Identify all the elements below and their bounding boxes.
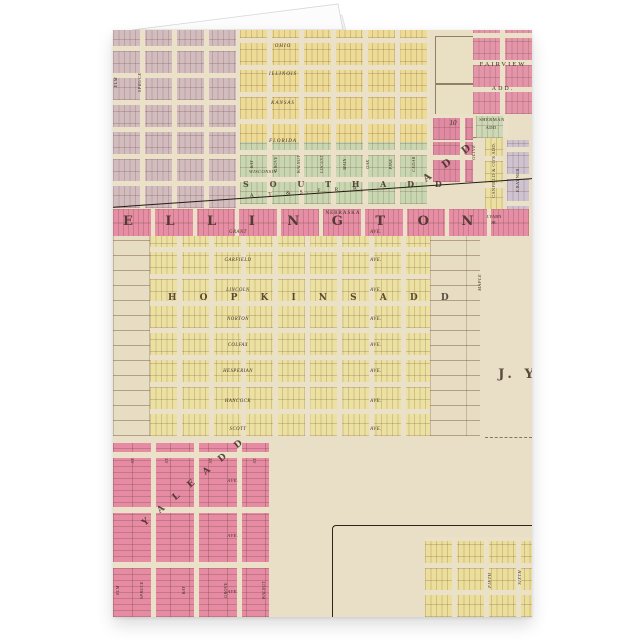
greeting-card-front-map[interactable]: OHIOILLINOISKANSASFLORIDAWISCONSINNEBRAS… <box>113 30 532 617</box>
green-street-1: GROVE <box>274 149 278 179</box>
street-label-wisconsin: WISCONSIN <box>223 170 303 175</box>
canfield-add-label: CANFIELD & CO'S ADD. <box>492 129 497 211</box>
avenue-suffix-7: AVE. <box>361 428 391 433</box>
district-fairview-pink <box>473 30 532 114</box>
green-street-6: PINE <box>389 149 393 179</box>
street-label-spruce: SPRUCE <box>138 67 143 97</box>
street-label-ohio: OHIO <box>243 44 323 49</box>
bottom-street-2: BAY <box>182 575 186 605</box>
yarn-label2: JR. <box>481 221 507 226</box>
owner-big-letters: J. Y <box>498 368 532 381</box>
fairview-add-label2: ADD. <box>483 86 523 92</box>
pink-st-label-0: ST. <box>131 450 135 470</box>
outlots-left <box>113 236 150 436</box>
section-dash-line <box>485 437 532 438</box>
street-label-olive: OLIVE <box>472 137 477 167</box>
north-add-big-letters: S O U T H A D D <box>243 180 423 188</box>
street-label-illinois: ILLINOIS <box>243 72 323 77</box>
green-street-2: WALNUT <box>297 149 301 179</box>
pink-ave-label: AVE. <box>218 534 248 539</box>
district-northwest-mauve <box>113 30 240 208</box>
rayner-label: F.RAYNER <box>516 149 521 211</box>
street-label-elm: ELM <box>114 67 119 97</box>
avenue-label-2: LINCOLN <box>208 289 268 294</box>
avenue-label-4: COLFAX <box>208 344 268 349</box>
town-big-letters: E L L I N G T O N <box>123 215 453 228</box>
pink-st-label-3: ST. <box>253 450 257 470</box>
bottom-street-3: GROVE <box>224 575 228 605</box>
mid-add-big-letters: H O P K I N S A D D <box>168 294 418 303</box>
pink-block-10 <box>433 114 473 140</box>
street-label-maple: MAPLE <box>478 267 483 297</box>
avenue-label-3: NORTON <box>208 318 268 323</box>
inset-street-sixth: SIXTH <box>518 562 523 592</box>
avenue-suffix-5: AVE. <box>361 370 391 375</box>
green-street-3: LOCUST <box>320 149 324 179</box>
green-street-0: BAY <box>250 149 254 179</box>
avenue-label-7: SCOTT <box>208 428 268 433</box>
sherman-add-label: SHERMAN <box>476 118 508 123</box>
inset-street-fifth: FIFTH <box>488 565 493 595</box>
bottom-street-0: ELM <box>116 575 120 605</box>
pink-ave-label: AVE. <box>218 479 248 484</box>
product-photo: OHIOILLINOISKANSASFLORIDAWISCONSINNEBRAS… <box>0 0 644 644</box>
card-back-panel <box>128 3 364 32</box>
avenue-suffix-0: AVE. <box>361 231 391 236</box>
street-label-kansas: KANSAS <box>243 101 323 106</box>
avenue-suffix-1: AVE. <box>361 259 391 264</box>
district-hopkins-yellow <box>150 236 430 436</box>
fairview-add-label: FAIRVIEW <box>475 62 531 69</box>
pink-st-label-2: ST. <box>209 450 213 470</box>
yarn-label: J.YARN <box>481 215 507 220</box>
avenue-suffix-4: AVE. <box>361 344 391 349</box>
green-street-5: OAK <box>366 149 370 179</box>
pink-st-label-1: ST. <box>165 450 169 470</box>
avenue-suffix-6: AVE. <box>361 400 391 405</box>
avenue-label-6: HANCOCK <box>208 400 268 405</box>
avenue-suffix-3: AVE. <box>361 318 391 323</box>
bottom-street-1: SPRUCE <box>140 575 144 605</box>
green-street-4: MAIN <box>343 149 347 179</box>
avenue-label-5: HESPERIAN <box>208 370 268 375</box>
avenue-label-1: GARFIELD <box>208 259 268 264</box>
block-number-10: 10 <box>443 120 463 127</box>
outlots-right <box>430 236 480 436</box>
green-street-7: CEDAR <box>412 149 416 179</box>
avenue-suffix-2: AVE. <box>361 289 391 294</box>
avenue-label-0: GRANT <box>208 231 268 236</box>
bottom-street-4: WALNUT <box>262 575 266 605</box>
street-label-florida: FLORIDA <box>243 139 323 144</box>
